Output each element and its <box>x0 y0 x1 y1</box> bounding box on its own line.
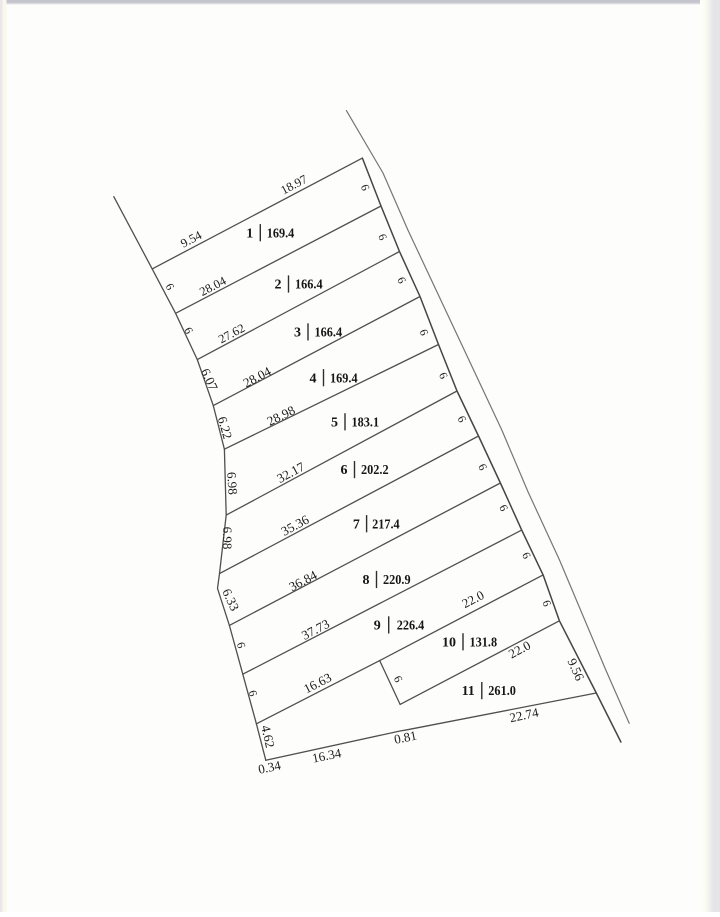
svg-text:169.4: 169.4 <box>267 226 295 241</box>
svg-text:9: 9 <box>374 619 381 634</box>
svg-text:217.4: 217.4 <box>372 517 400 532</box>
svg-text:1: 1 <box>246 226 253 241</box>
svg-text:11: 11 <box>462 684 475 699</box>
svg-text:226.4: 226.4 <box>397 619 425 634</box>
svg-text:7: 7 <box>353 517 360 532</box>
svg-text:183.1: 183.1 <box>352 415 380 430</box>
svg-text:202.2: 202.2 <box>361 463 389 478</box>
svg-text:220.9: 220.9 <box>383 573 411 588</box>
svg-text:131.8: 131.8 <box>470 635 498 650</box>
svg-text:6.98: 6.98 <box>220 527 235 550</box>
svg-text:4: 4 <box>310 371 317 386</box>
svg-text:6.98: 6.98 <box>224 471 241 495</box>
svg-text:2: 2 <box>275 278 282 293</box>
svg-text:166.4: 166.4 <box>315 326 343 341</box>
svg-text:5: 5 <box>331 415 338 430</box>
svg-text:10: 10 <box>442 635 456 650</box>
svg-text:169.4: 169.4 <box>330 371 358 386</box>
svg-text:8: 8 <box>363 573 370 588</box>
svg-text:166.4: 166.4 <box>295 278 323 293</box>
svg-text:6: 6 <box>341 463 348 478</box>
svg-text:261.0: 261.0 <box>488 684 516 699</box>
svg-text:3: 3 <box>294 326 301 341</box>
